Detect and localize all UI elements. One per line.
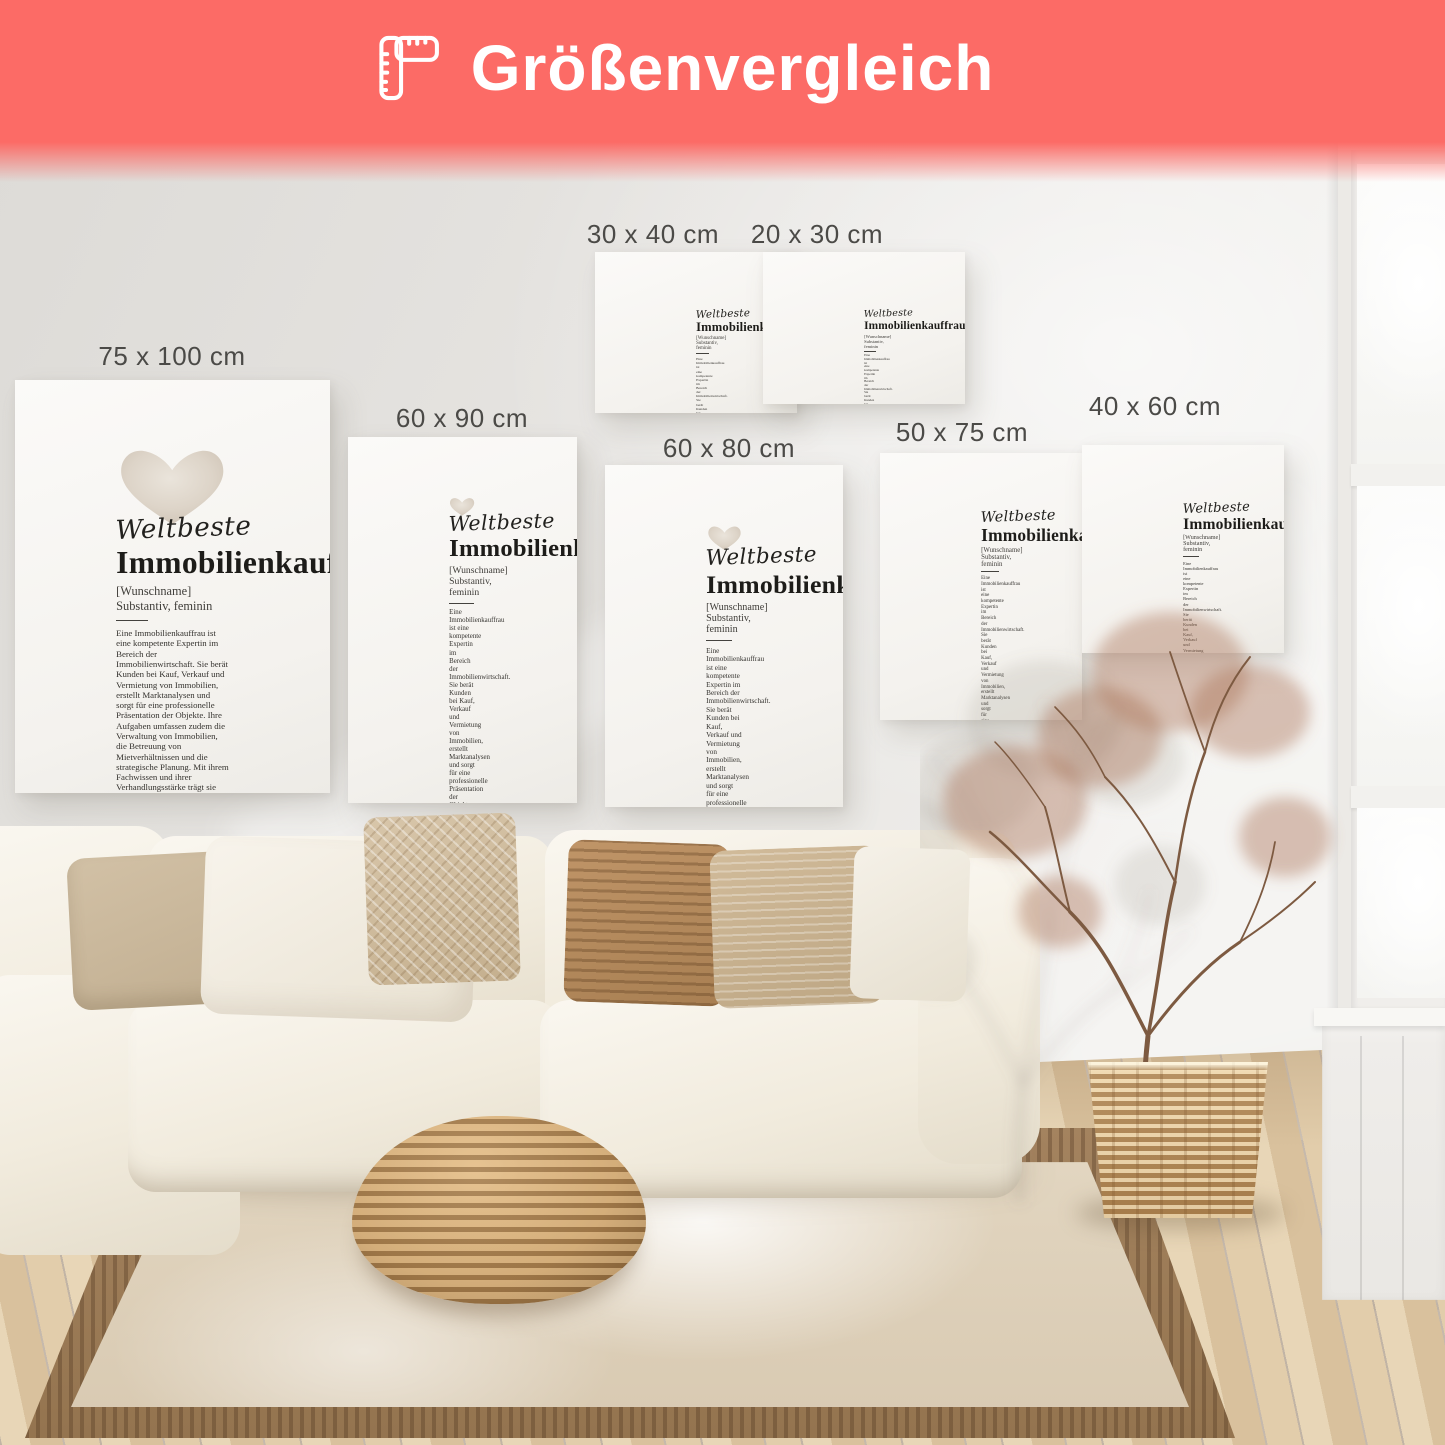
size-label-60x90: 60 x 90 cm xyxy=(396,404,528,433)
size-label-30x40: 30 x 40 cm xyxy=(587,220,719,249)
poster-75x100: Weltbeste Immobilienkauffrau [Wunschname… xyxy=(15,380,330,793)
size-label-20x30: 20 x 30 cm xyxy=(751,220,883,249)
folding-ruler-icon xyxy=(371,31,445,105)
sideboard-seam xyxy=(1402,1036,1404,1310)
size-label-60x80: 60 x 80 cm xyxy=(663,434,795,463)
window-mullion xyxy=(1351,464,1445,486)
poster-divider xyxy=(116,620,148,621)
window-mullion xyxy=(1351,786,1445,808)
poster-main-title: Immobilienkauffrau xyxy=(449,536,476,563)
size-label-75x100: 75 x 100 cm xyxy=(98,342,245,371)
window xyxy=(1338,150,1445,1010)
poster-60x90: Weltbeste Immobilienkauffrau [Wunschname… xyxy=(348,437,577,803)
header-banner: Größenvergleich xyxy=(0,0,1445,142)
pillow-tan-ribbed xyxy=(563,839,731,1007)
pillow-white-small xyxy=(849,846,970,1002)
size-label-50x75: 50 x 75 cm xyxy=(896,418,1028,447)
woven-basket xyxy=(1088,1062,1268,1218)
poster-script-title: Weltbeste xyxy=(981,511,982,525)
poster-script-title: Weltbeste xyxy=(705,547,741,570)
poster-subtitle: [Wunschname] Substantiv, feminin xyxy=(706,602,742,635)
poster-divider xyxy=(449,603,474,604)
poster-main-title: Immobilienkauffrau xyxy=(706,571,742,599)
poster-subtitle: [Wunschname] Substantiv, feminin xyxy=(449,565,476,598)
poster-script-title: Weltbeste xyxy=(115,514,229,544)
window-pane xyxy=(1357,486,1445,786)
header-lockup: Größenvergleich xyxy=(371,31,995,105)
poster-divider xyxy=(706,640,732,641)
poster-subtitle: [Wunschname] Substantiv, feminin xyxy=(116,584,229,614)
size-label-40x60: 40 x 60 cm xyxy=(1089,392,1221,421)
poster-body-text: Eine Immobilienkauffrau ist eine kompete… xyxy=(449,609,476,803)
poster-divider xyxy=(696,353,709,354)
poster-20x30: Weltbeste Immobilienkauffrau [Wunschname… xyxy=(763,252,965,404)
poster-60x80: Weltbeste Immobilienkauffrau [Wunschname… xyxy=(605,465,843,807)
sideboard-seam xyxy=(1360,1036,1362,1310)
window-pane xyxy=(1357,808,1445,998)
poster-body-text: Eine Immobilienkauffrau ist eine kompete… xyxy=(116,628,229,793)
poster-body-text: Eine Immobilienkauffrau ist eine kompete… xyxy=(706,647,742,807)
page-title: Größenvergleich xyxy=(471,31,995,105)
window-pane xyxy=(1357,164,1445,464)
pillow-beige-textured xyxy=(363,812,521,985)
poster-main-title: Immobilienkauffrau xyxy=(116,546,229,580)
poster-divider xyxy=(864,351,875,352)
size-comparison-image: 75 x 100 cm 60 x 90 cm 30 x 40 cm 20 x 3… xyxy=(0,0,1445,1445)
poster-script-title: Weltbeste xyxy=(448,513,475,534)
